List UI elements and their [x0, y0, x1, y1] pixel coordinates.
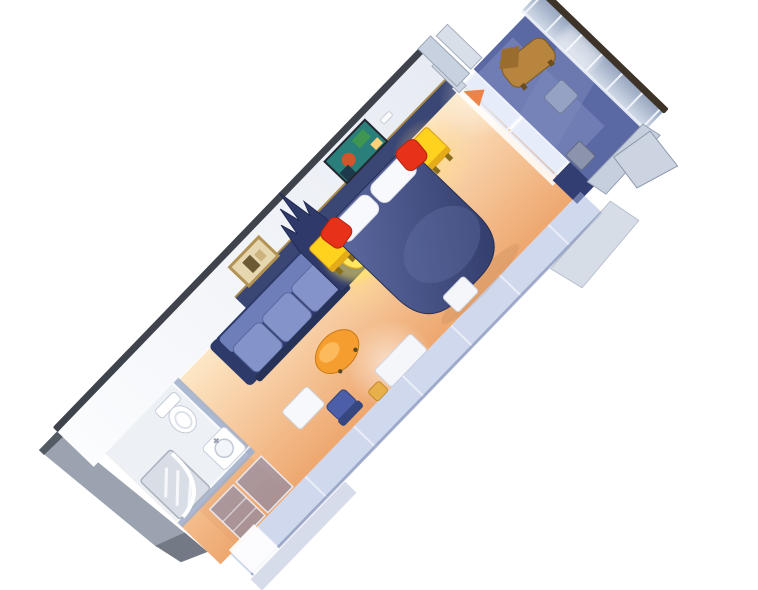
stateroom-floorplan [0, 0, 758, 590]
floorplan-canvas [0, 0, 758, 590]
scene [35, 0, 714, 590]
